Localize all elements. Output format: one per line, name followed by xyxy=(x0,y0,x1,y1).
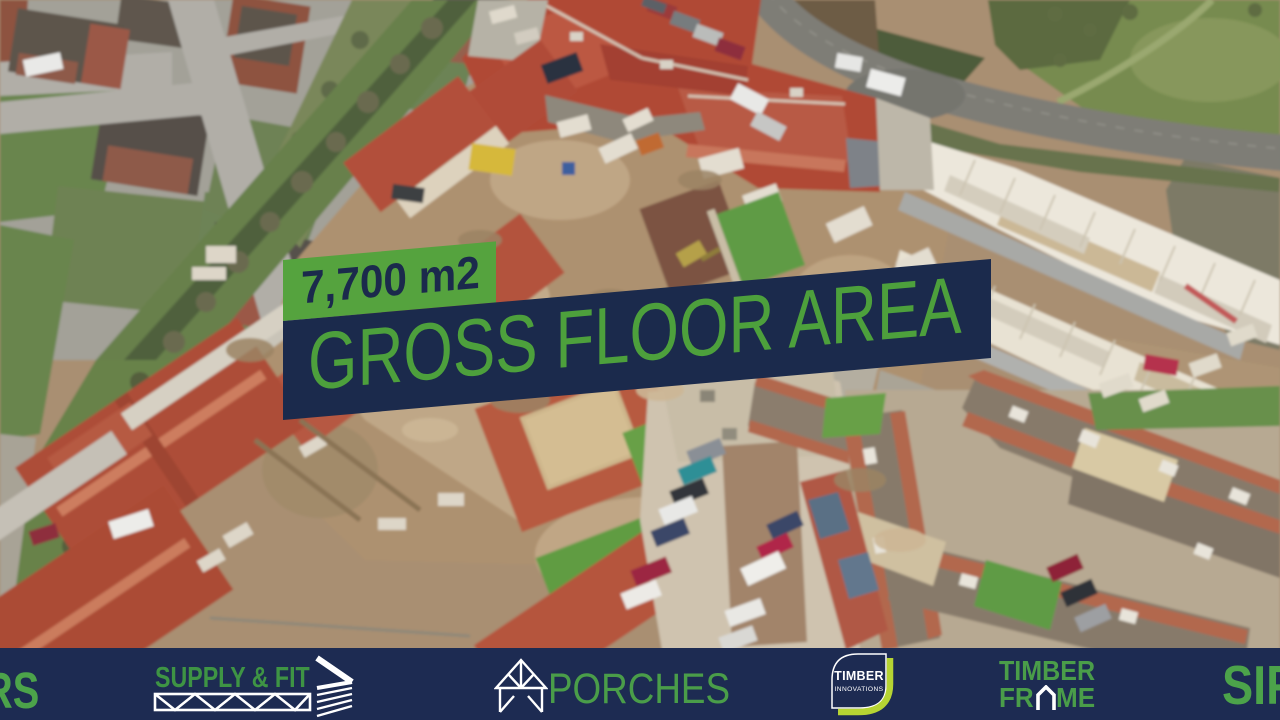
svg-text:INNOVATIONS: INNOVATIONS xyxy=(835,686,884,693)
svg-text:TIMBER: TIMBER xyxy=(834,669,884,683)
